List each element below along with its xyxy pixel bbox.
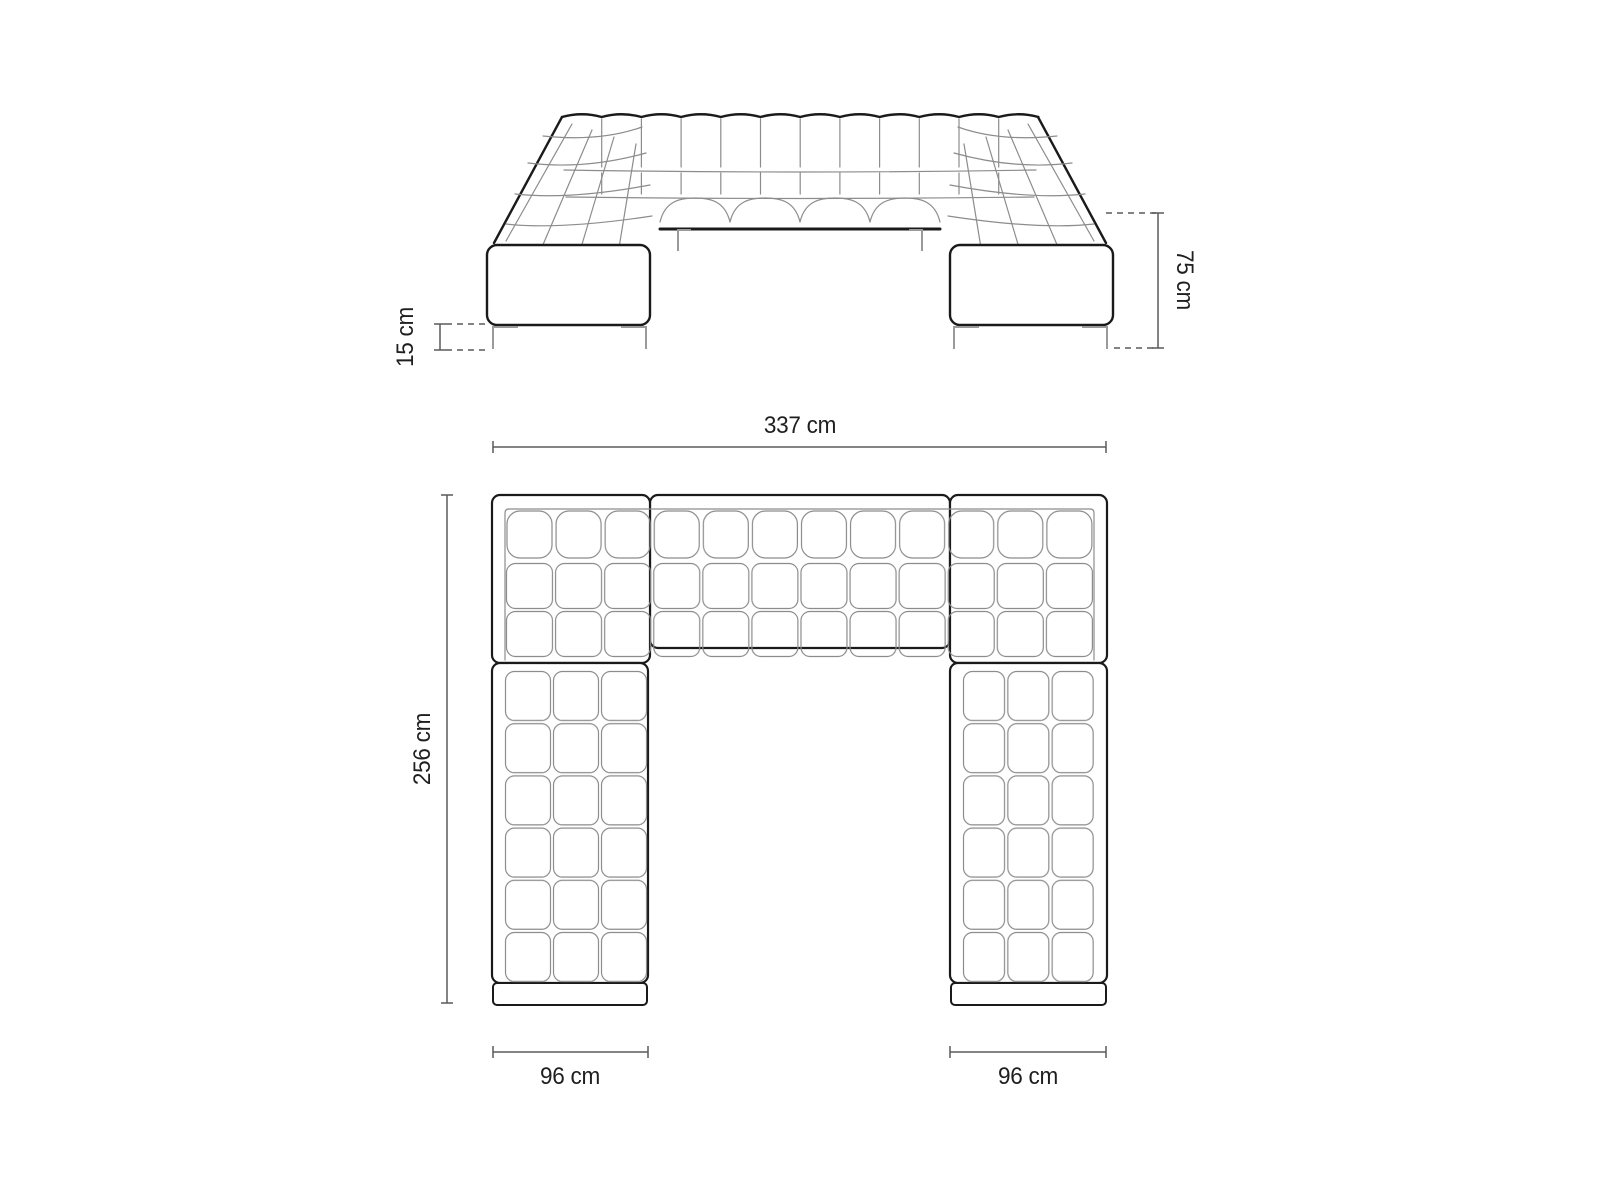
arm-leg-inner: [622, 327, 646, 348]
leg-height-label: 15 cm: [392, 307, 420, 367]
plan-back-tuft-grid: [505, 562, 1094, 658]
backrest-top-edge: [562, 114, 1038, 117]
wing-tuft-fan: [506, 124, 636, 254]
sofa-left-half: [487, 117, 690, 348]
left-arm-width-label: 96 cm: [540, 1063, 600, 1091]
plan-back-cushion-row: [505, 509, 1094, 560]
overall-height-dimension: [1106, 213, 1164, 348]
sofa-dimension-diagram: 15 cm 75 cm 337 cm 256 cm 96 cm 96 cm: [0, 0, 1600, 1200]
overall-height-label: 75 cm: [1170, 250, 1198, 310]
overall-depth-dimension: [441, 495, 453, 1003]
diagram-drawing: [0, 0, 1600, 1200]
overall-width-label: 337 cm: [764, 412, 836, 440]
arm-leg-outer: [493, 327, 517, 348]
front-elevation-view: [434, 114, 1164, 350]
plan-right-arm-tuft-grid: [962, 670, 1095, 983]
overall-width-dimension: [493, 441, 1106, 453]
backrest-seam-upper: [564, 170, 1036, 172]
right-arm-width-dimension: [950, 1046, 1106, 1058]
leg-height-dimension: [434, 324, 488, 350]
center-leg: [678, 230, 690, 250]
left-arm-width-dimension: [493, 1046, 648, 1058]
arm-front-panel: [487, 245, 650, 325]
seat-cushion-bulges: [660, 198, 940, 222]
plan-left-arm-tuft-grid: [504, 670, 648, 983]
plan-right-plinth: [951, 983, 1106, 1005]
plan-left-plinth: [493, 983, 647, 1005]
overall-depth-label: 256 cm: [409, 713, 437, 785]
right-arm-width-label: 96 cm: [998, 1063, 1058, 1091]
backrest-seam-lower: [566, 197, 1034, 199]
backrest-tuft-verticals-upper: [602, 119, 999, 167]
top-plan-view: [441, 441, 1107, 1058]
sofa-right-half: [910, 117, 1113, 348]
backrest-tuft-verticals-lower: [602, 173, 999, 194]
